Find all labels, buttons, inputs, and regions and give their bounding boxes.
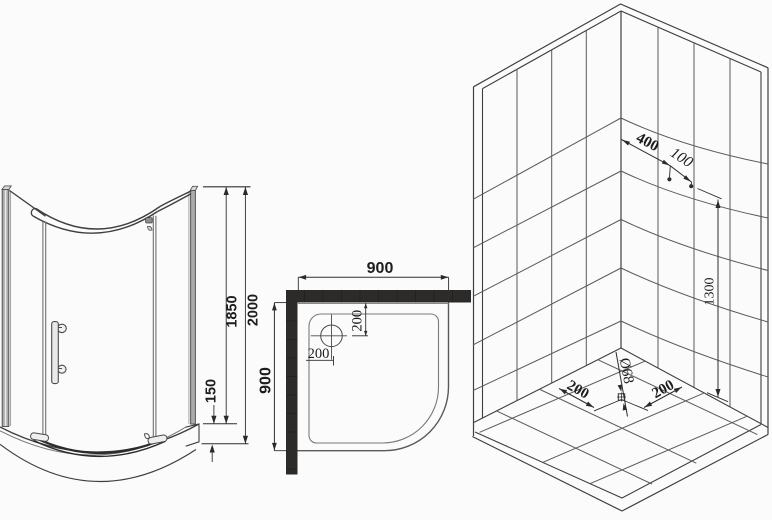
svg-text:900: 900: [258, 367, 275, 394]
svg-text:1850: 1850: [225, 295, 241, 327]
svg-text:150: 150: [204, 379, 220, 403]
svg-text:200: 200: [308, 346, 330, 362]
svg-text:200: 200: [350, 310, 366, 332]
svg-text:900: 900: [367, 260, 394, 277]
svg-text:1300: 1300: [703, 278, 718, 306]
svg-text:2000: 2000: [245, 294, 261, 326]
